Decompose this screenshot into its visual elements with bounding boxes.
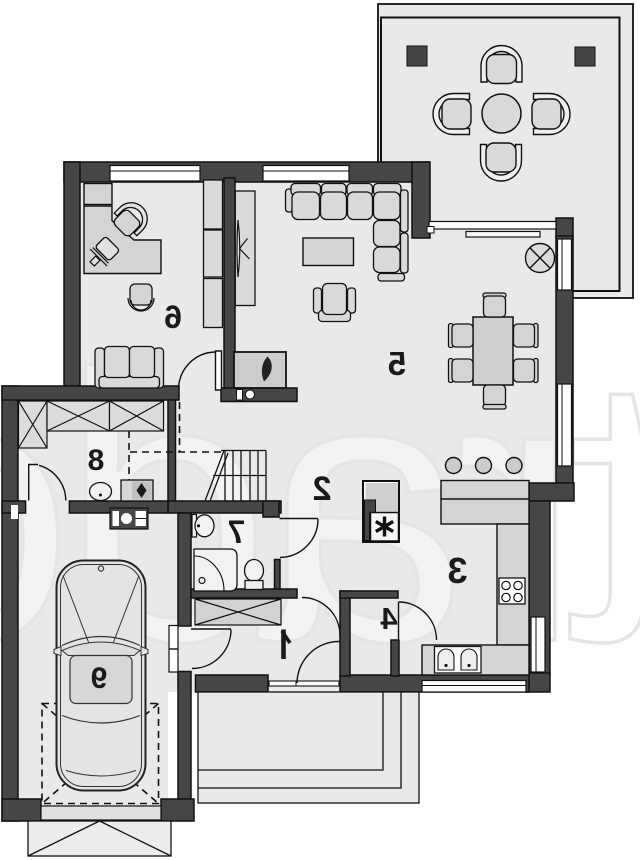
svg-text:6: 6 [164,299,182,335]
svg-text:8: 8 [88,444,105,477]
svg-text:9: 9 [91,662,108,695]
svg-text:4: 4 [380,601,398,636]
svg-text:2: 2 [313,470,332,508]
svg-text:3: 3 [447,550,467,591]
svg-text:5: 5 [388,345,406,382]
svg-text:7: 7 [228,514,246,550]
